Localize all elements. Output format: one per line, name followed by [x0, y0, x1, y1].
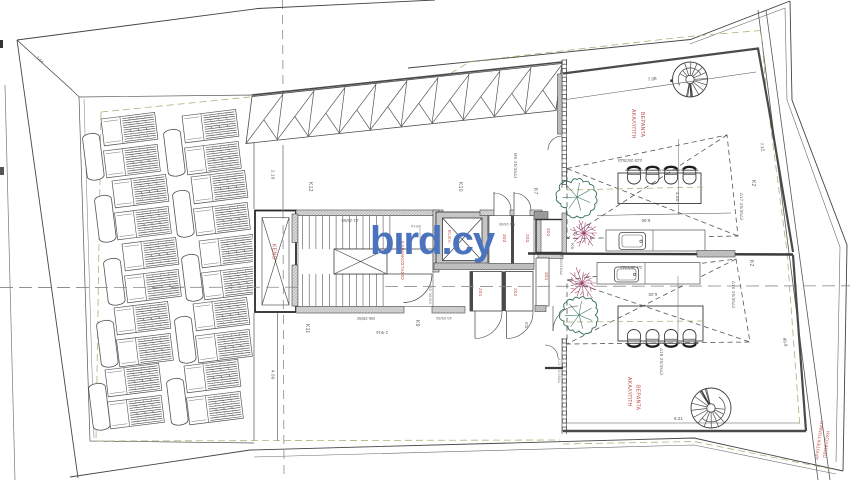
svg-text:202: 202	[513, 288, 518, 297]
svg-text:4.60: 4.60	[271, 370, 276, 380]
svg-text:bırd.cy: bırd.cy	[370, 219, 496, 263]
svg-text:K5: K5	[524, 322, 529, 328]
svg-text:K2: K2	[750, 180, 756, 187]
svg-text:8.21: 8.21	[674, 416, 683, 421]
svg-text:ΒΕΡΑΝΤΑ: ΒΕΡΑΝΤΑ	[639, 112, 645, 138]
svg-text:K12: K12	[307, 182, 313, 192]
svg-text:ΑΚΑΛΥΠΤΗ: ΑΚΑΛΥΠΤΗ	[626, 377, 632, 407]
svg-text:Δ16·25/35Δλ: Δ16·25/35Δλ	[731, 281, 736, 309]
svg-text:2·Φ16: 2·Φ16	[375, 330, 387, 335]
svg-text:Φ8·38/50: Φ8·38/50	[428, 285, 433, 305]
svg-text:Δ18·25/35Δλ: Δ18·25/35Δλ	[659, 348, 664, 376]
svg-text:K11: K11	[304, 324, 310, 333]
svg-text:K9: K9	[414, 320, 420, 327]
svg-text:6.20: 6.20	[648, 292, 657, 297]
svg-text:Μ6·25/50: Μ6·25/50	[499, 222, 515, 226]
svg-text:Δ4·25/50Δλ: Δ4·25/50Δλ	[619, 265, 642, 270]
svg-text:3.50: 3.50	[675, 192, 680, 202]
svg-text:301: 301	[544, 272, 549, 281]
svg-text:Μ6·25/35Δλ: Μ6·25/35Δλ	[513, 153, 518, 179]
svg-text:K2: K2	[748, 260, 754, 267]
svg-text:Δ1·25/50: Δ1·25/50	[341, 218, 359, 223]
svg-text:302: 302	[546, 228, 551, 237]
svg-text:303: 303	[502, 234, 507, 243]
svg-text:Μ6·25/50: Μ6·25/50	[356, 316, 374, 321]
svg-text:ΒΕΡΑΝΤΑ: ΒΕΡΑΝΤΑ	[635, 385, 641, 411]
svg-text:Δ14·25/35Δλ: Δ14·25/35Δλ	[557, 358, 561, 383]
svg-text:2.10: 2.10	[271, 170, 276, 180]
svg-text:Δ17·25/35Δλ: Δ17·25/35Δλ	[739, 193, 744, 221]
svg-text:K10: K10	[457, 182, 463, 192]
svg-text:42·25/35Δλ: 42·25/35Δλ	[559, 252, 564, 275]
svg-text:201: 201	[478, 288, 483, 297]
svg-text:ΚΕΝΟ: ΚΕΝΟ	[271, 244, 277, 260]
svg-text:5.90: 5.90	[641, 218, 650, 223]
svg-text:K6: K6	[570, 243, 575, 249]
svg-text:K7: K7	[532, 188, 538, 195]
svg-text:ΑΚΑΛΥΠΤΗ: ΑΚΑΛΥΠΤΗ	[630, 109, 636, 139]
svg-text:203: 203	[525, 234, 530, 243]
svg-text:Δ19·25/35Δλ: Δ19·25/35Δλ	[617, 158, 642, 163]
svg-text:43·25/50: 43·25/50	[435, 316, 452, 321]
